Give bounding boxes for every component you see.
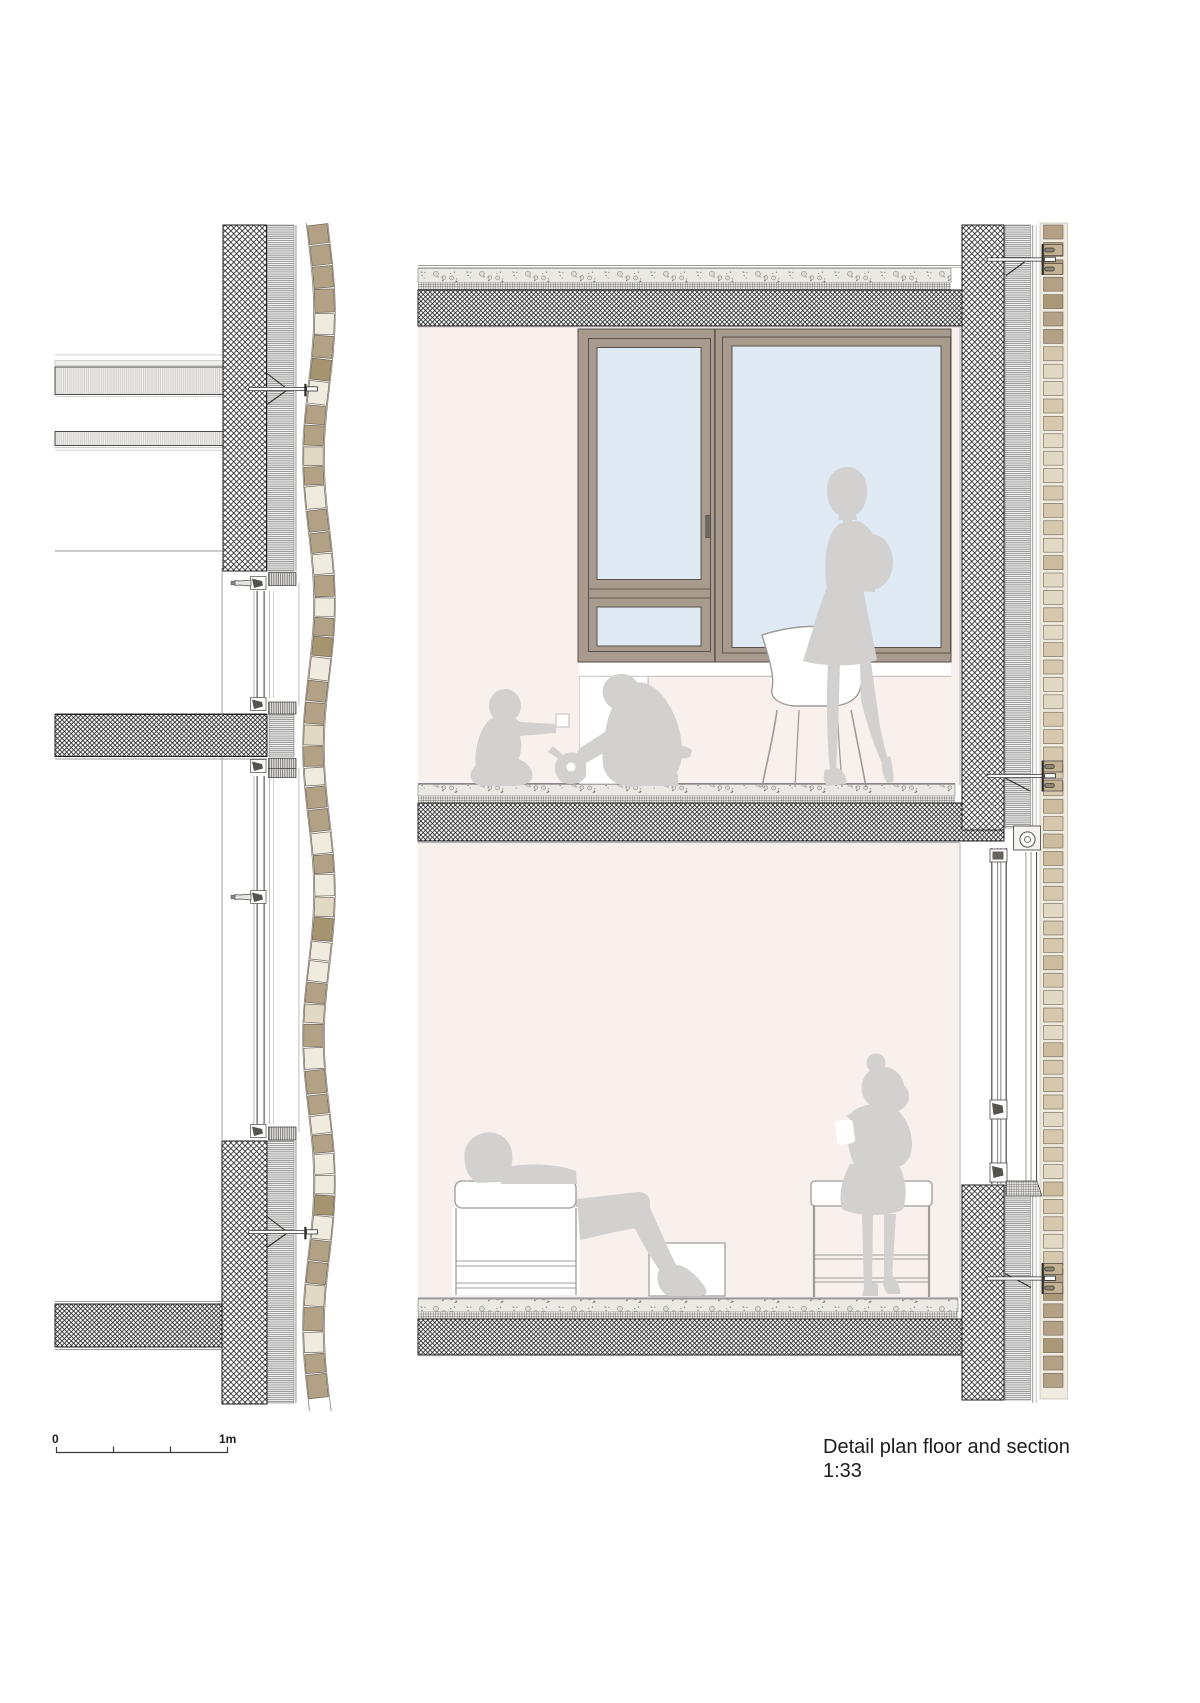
svg-text:Detail plan floor and section: Detail plan floor and section: [823, 1436, 1070, 1458]
svg-text:1m: 1m: [219, 1432, 236, 1446]
svg-text:0: 0: [52, 1432, 59, 1446]
svg-text:1:33: 1:33: [823, 1460, 862, 1482]
